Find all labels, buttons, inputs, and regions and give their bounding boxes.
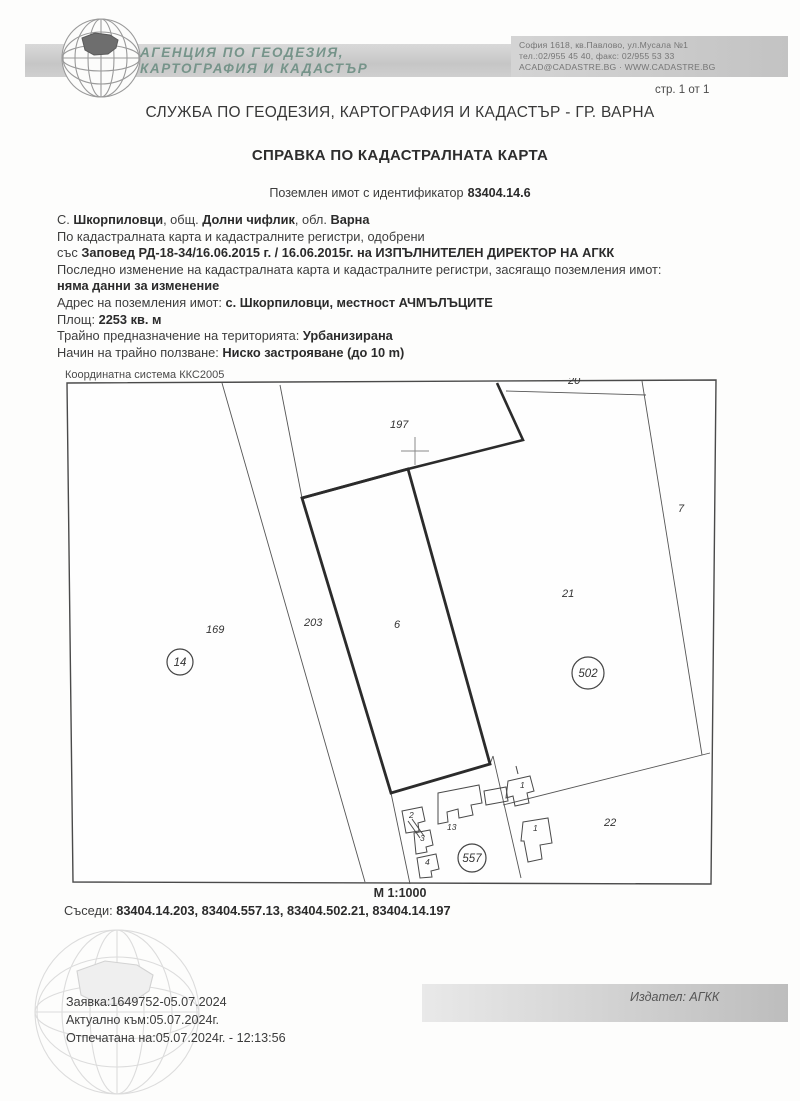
agency-name: АГЕНЦИЯ ПО ГЕОДЕЗИЯ, КАРТОГРАФИЯ И КАДАС… (140, 45, 400, 77)
last-change-label: Последно изменение на кадастралната карт… (57, 262, 757, 279)
property-id-line: Поземлен имот с идентификатор83404.14.6 (0, 186, 800, 200)
location-line: С. Шкорпиловци, общ. Долни чифлик, обл. … (57, 212, 757, 229)
neighbors-ids: 83404.14.203, 83404.557.13, 83404.502.21… (116, 903, 450, 918)
printed-at-line: Отпечатана на:05.07.2024г. - 12:13:56 (66, 1031, 286, 1045)
order-line: със Заповед РД-18-34/16.06.2015 г. / 16.… (57, 245, 757, 262)
page-indicator: стр. 1 от 1 (655, 84, 709, 96)
agency-address-line1: София 1618, кв.Павлово, ул.Мусала №1 (519, 40, 788, 51)
address-line: Адрес на поземления имот: с. Шкорпиловци… (57, 295, 757, 312)
approved-line: По кадастралната карта и кадастралните р… (57, 229, 757, 246)
property-details: С. Шкорпиловци, общ. Долни чифлик, обл. … (57, 212, 757, 361)
parcel-label-7: 7 (678, 503, 685, 515)
issuer-bar (422, 984, 788, 1022)
parcel-label-169: 169 (206, 624, 224, 636)
building-label-3: 3 (420, 833, 425, 843)
office-title: СЛУЖБА ПО ГЕОДЕЗИЯ, КАРТОГРАФИЯ И КАДАСТ… (0, 104, 800, 122)
neighbors-line: Съседи: 83404.14.203, 83404.557.13, 8340… (64, 903, 451, 918)
map-frame (67, 380, 716, 884)
parcel-label-203: 203 (303, 617, 323, 629)
parcel-label-6: 6 (394, 619, 401, 631)
parcel-label-21: 21 (561, 588, 574, 600)
header-address-block: София 1618, кв.Павлово, ул.Мусала №1 тел… (511, 36, 788, 77)
building-label-1-upper: 1 (520, 780, 525, 790)
building-label-1-lower: 1 (533, 823, 538, 833)
parcel-label-557: 557 (462, 853, 482, 865)
parcel-label-22: 22 (603, 817, 616, 829)
agency-address-line2: тел.:02/955 45 40, факс: 02/955 53 33 (519, 51, 788, 62)
building-label-2: 2 (408, 810, 414, 820)
area-line: Площ: 2253 кв. м (57, 312, 757, 329)
agency-address-line3: ACAD@CADASTRE.BG · WWW.CADASTRE.BG (519, 62, 788, 73)
building-label-4: 4 (425, 857, 430, 867)
property-id: 83404.14.6 (468, 186, 531, 200)
parcel-label-14: 14 (174, 657, 187, 669)
watermark-globe-icon (25, 923, 210, 1101)
map-scale: М 1:1000 (0, 886, 800, 900)
cadastral-document-page: София 1618, кв.Павлово, ул.Мусала №1 тел… (0, 0, 800, 1101)
parcel-label-20: 20 (567, 378, 581, 387)
last-change-value: няма данни за изменение (57, 278, 757, 295)
valid-as-of-line: Актуално към:05.07.2024г. (66, 1013, 219, 1027)
usage-line: Начин на трайно ползване: Ниско застрояв… (57, 345, 757, 362)
issuer-text: Издател: АГКК (630, 990, 719, 1004)
agency-globe-logo-icon (58, 14, 144, 102)
parcel-label-197: 197 (390, 419, 409, 431)
cadastral-map: 14 502 557 197 20 7 21 169 203 6 22 2 3 … (0, 378, 800, 893)
request-line: Заявка:1649752-05.07.2024 (66, 995, 227, 1009)
parcel-label-502: 502 (578, 668, 598, 680)
territory-line: Трайно предназначение на територията: Ур… (57, 328, 757, 345)
document-title: СПРАВКА ПО КАДАСТРАЛНАТА КАРТА (0, 147, 800, 164)
building-label-13: 13 (447, 822, 457, 832)
